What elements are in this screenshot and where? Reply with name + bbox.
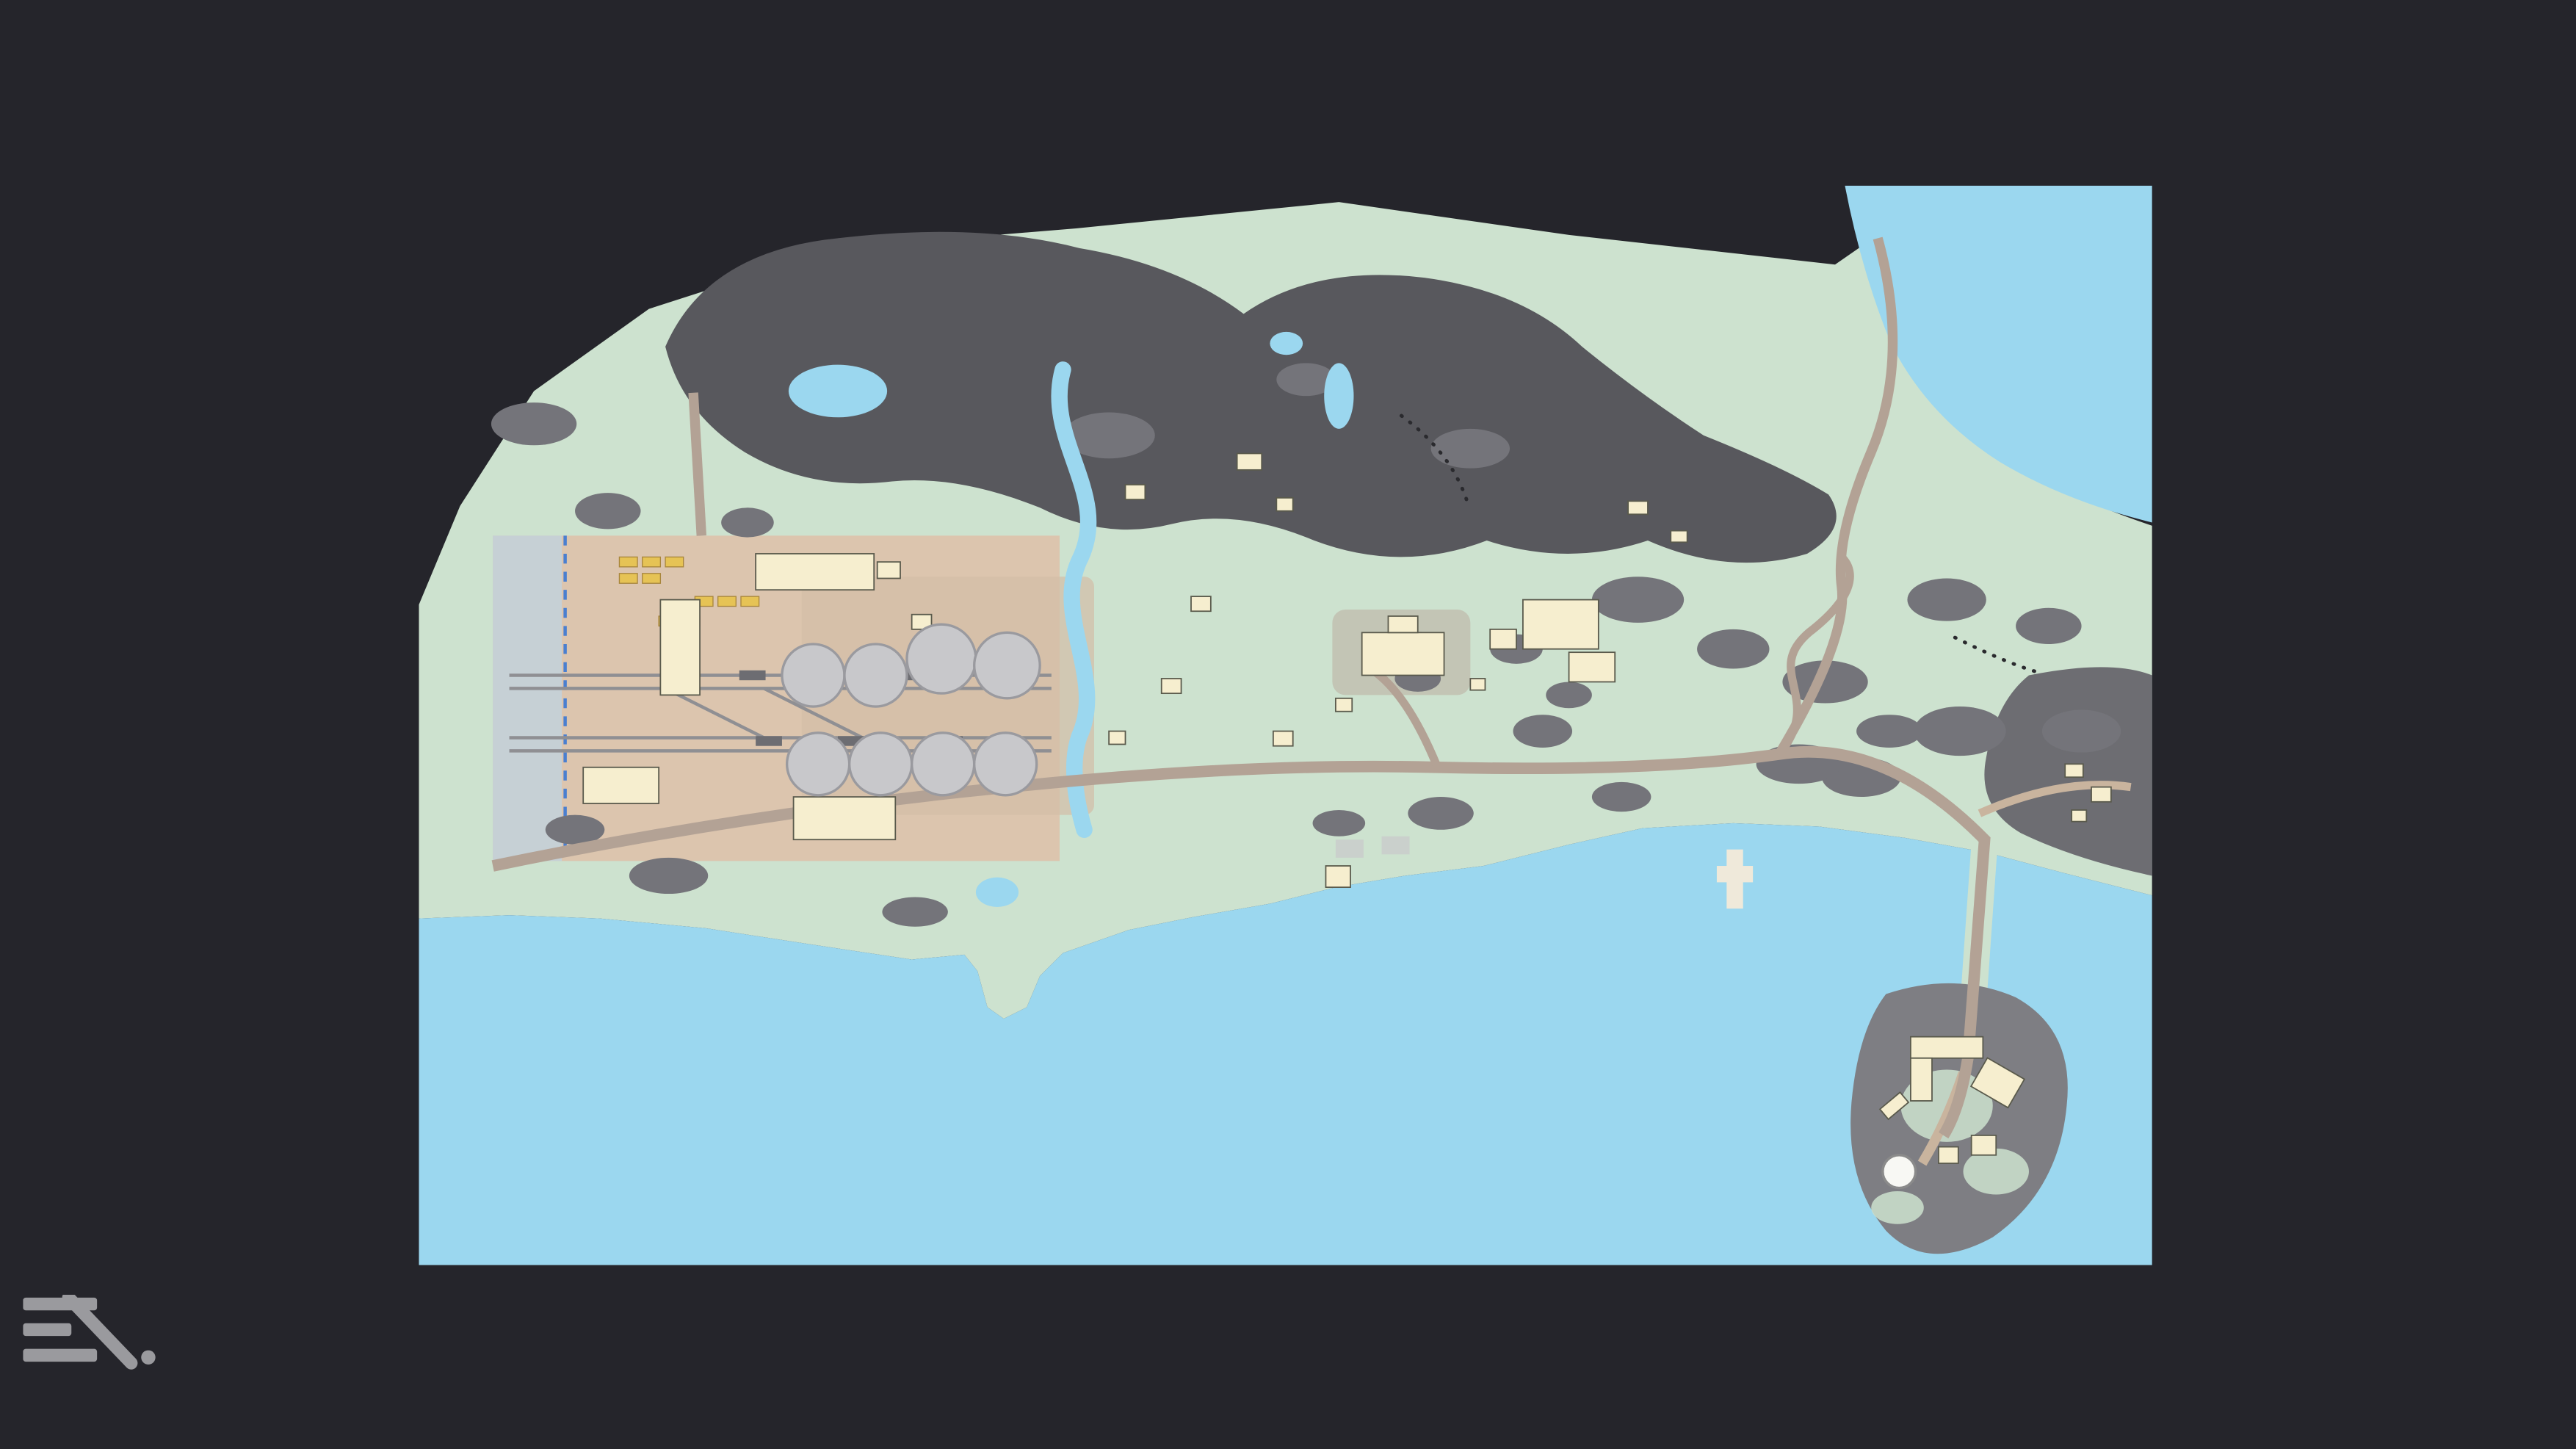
eft-library-logo [23,1295,194,1397]
map-image[interactable] [419,186,2152,1265]
lighthouse-map-page [0,0,2576,1449]
eft-library-logo-icon [23,1295,194,1380]
map-terrain [419,186,2152,1265]
